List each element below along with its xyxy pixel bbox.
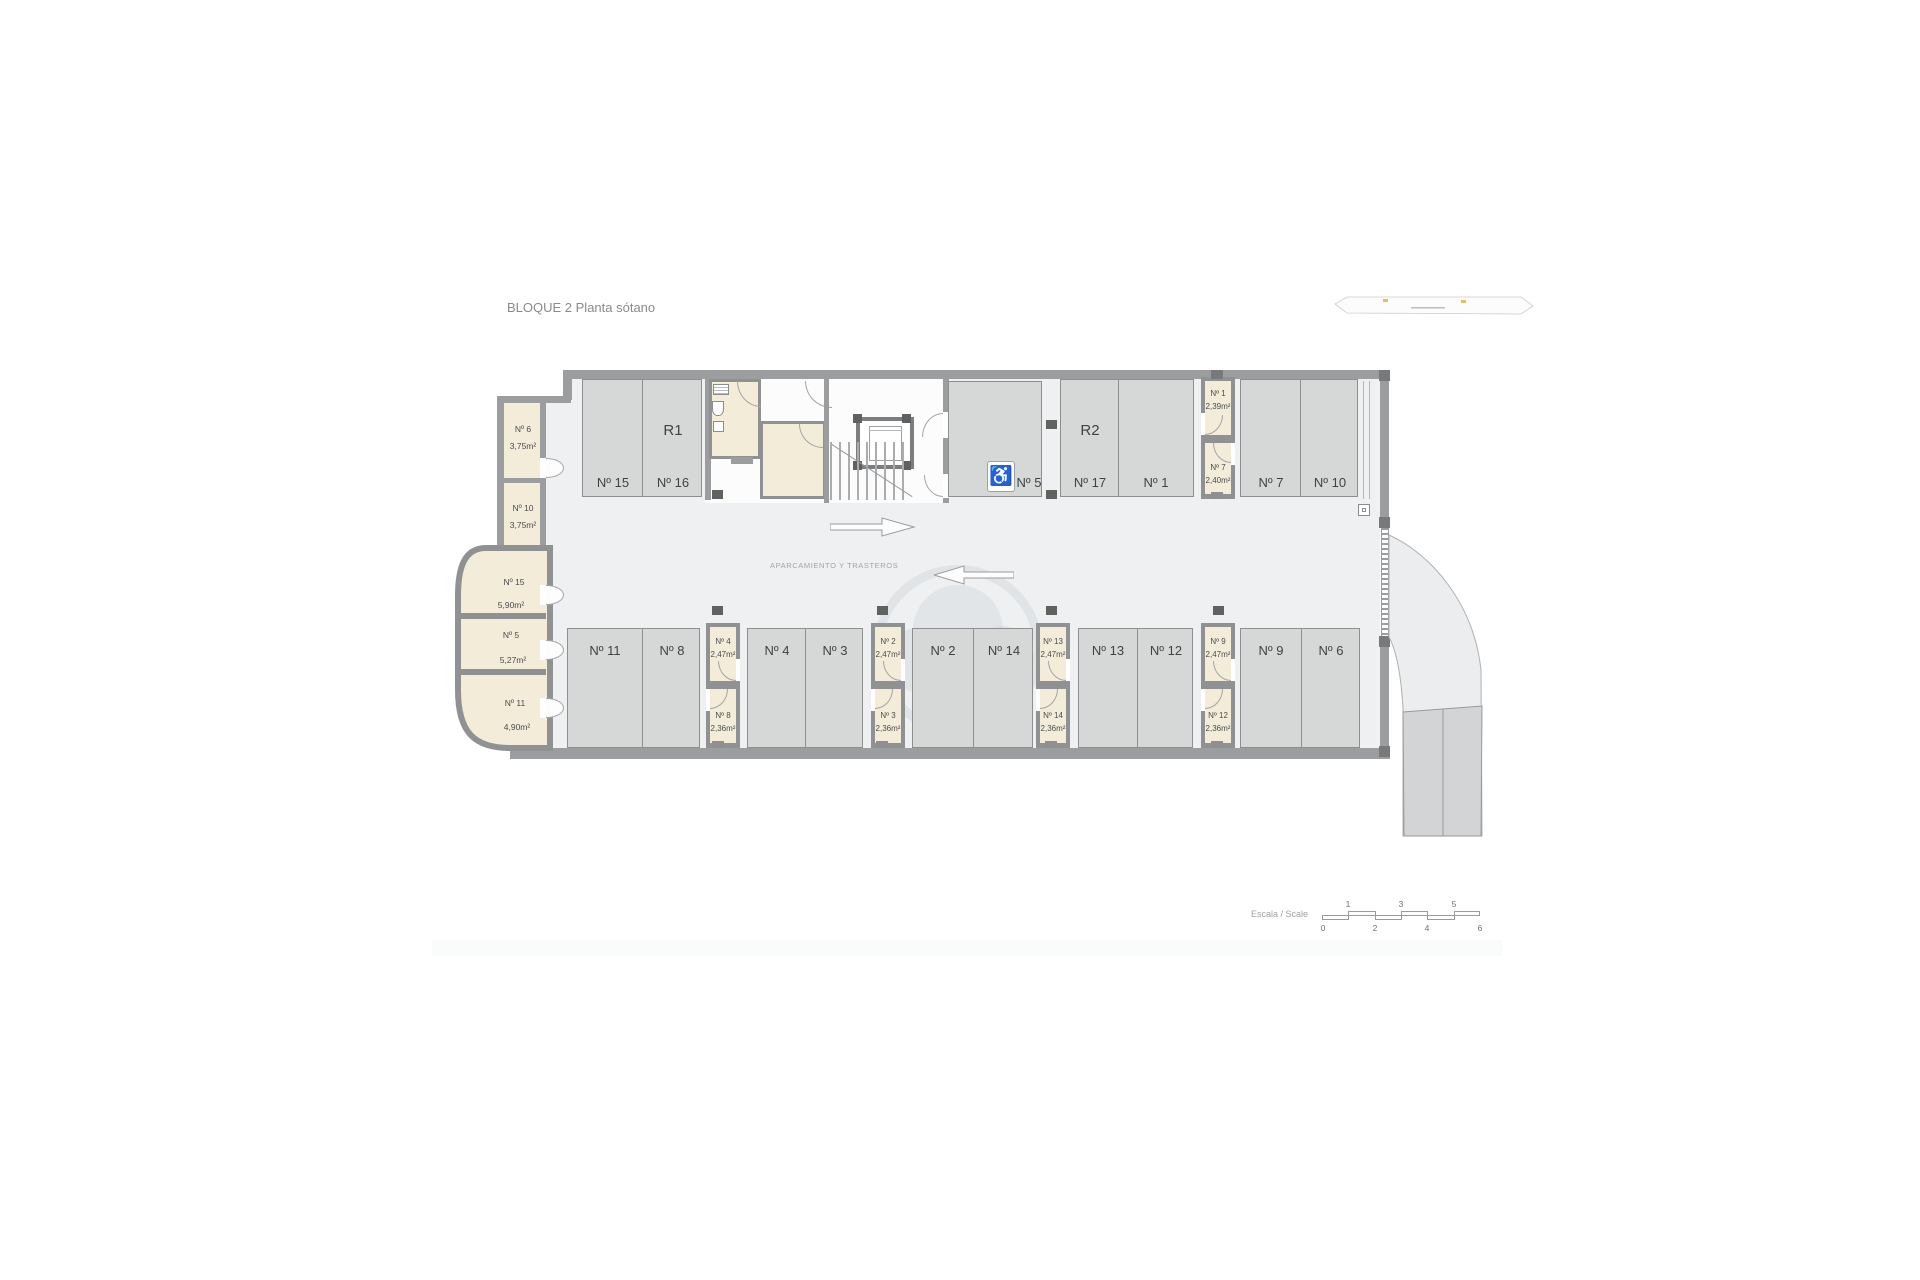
stall-n16-label: Nº 16 <box>657 475 689 490</box>
pillar <box>1213 606 1224 615</box>
scale-label: Escala / Scale <box>1251 909 1308 919</box>
storage-n5-no: Nº 5 <box>503 630 519 640</box>
floor-mask-topleft <box>506 370 563 397</box>
sink-icon <box>713 384 729 395</box>
scale-segment <box>1454 911 1480 916</box>
stall-n7-label: Nº 7 <box>1259 475 1284 490</box>
wall-joint-top-right <box>1379 370 1390 381</box>
scale-segment <box>1322 915 1349 920</box>
gate-control-dot <box>1362 508 1366 512</box>
scale-tick-0: 0 <box>1321 923 1326 933</box>
pillar <box>1046 420 1057 429</box>
door-track-line-1 <box>1363 381 1364 499</box>
ramp <box>1388 520 1498 840</box>
cabinet-icon <box>713 421 724 432</box>
stall-n10-label: Nº 10 <box>1314 475 1346 490</box>
accessible-badge: ♿ <box>987 461 1015 492</box>
scale-bar: 1 3 5 0 2 4 6 <box>1322 899 1482 935</box>
stall-divider <box>642 629 644 747</box>
stall-n1-label: Nº 1 <box>1144 475 1169 490</box>
wall-bottom <box>510 748 1390 759</box>
stall-divider <box>642 380 644 496</box>
storage-n7-no: Nº 7 <box>1201 463 1235 472</box>
storage-n11-no: Nº 11 <box>505 698 525 708</box>
page-title: BLOQUE 2 Planta sótano <box>507 300 655 315</box>
storage-col1-bottom-area: 2,36m² <box>706 724 740 733</box>
storage-column-3: Nº 13 2,47m² Nº 14 2,36m² <box>1036 623 1070 748</box>
door-gap-col1-top <box>736 659 740 681</box>
storage-col1-top-area: 2,47m² <box>706 650 740 659</box>
storage-col4-top-no: Nº 9 <box>1201 637 1235 646</box>
storage-room-n10 <box>504 483 540 548</box>
stall-pair-7-10: Nº 7 Nº 10 <box>1240 379 1358 497</box>
pillar <box>712 606 723 615</box>
stall-pair-2-14: Nº 2 Nº 14 <box>912 628 1033 748</box>
pillar <box>712 490 723 499</box>
storage-col4-bottom-no: Nº 12 <box>1201 711 1235 720</box>
stair-left-wall <box>824 379 829 503</box>
stall-divider <box>805 629 807 747</box>
wall-right-upper <box>1380 370 1389 528</box>
storage-column-4: Nº 9 2,47m² Nº 12 2,36m² <box>1201 623 1235 748</box>
storage-col2-bottom-no: Nº 3 <box>871 711 905 720</box>
stall-pair-15-16: R1 Nº 15 Nº 16 <box>582 379 702 497</box>
stall-n9-label: Nº 9 <box>1259 643 1284 658</box>
storage-n10-no: Nº 10 <box>512 503 533 513</box>
scale-segment <box>1348 911 1376 916</box>
utility-notch <box>731 457 753 464</box>
storage-column-2: Nº 2 2,47m² Nº 3 2,36m² <box>871 623 905 748</box>
stall-n4-label: Nº 4 <box>765 643 790 658</box>
scale-segment <box>1427 915 1455 920</box>
stall-pair-11-8: Nº 11 Nº 8 <box>567 628 700 748</box>
elevator-post-tr <box>902 414 911 423</box>
storage-col4-bottom-area: 2,36m² <box>1201 724 1235 733</box>
storage-n1-no: Nº 1 <box>1201 389 1235 398</box>
stall-pair-13-12: Nº 13 Nº 12 <box>1078 628 1193 748</box>
scale-tick-3: 3 <box>1399 899 1404 909</box>
storage-col2-bottom-area: 2,36m² <box>871 724 905 733</box>
storage-n5-area: 5,27m² <box>500 655 526 665</box>
wall-stub <box>876 741 888 748</box>
site-caption-line <box>1411 307 1445 309</box>
storage-column-1: Nº 4 2,47m² Nº 8 2,36m² <box>706 623 740 748</box>
storage-col3-bottom-area: 2,36m² <box>1036 724 1070 733</box>
floorplan-page: BLOQUE 2 Planta sótano <box>0 0 1920 1280</box>
scale-tick-4: 4 <box>1425 923 1430 933</box>
scale-segment <box>1375 915 1402 920</box>
storage-n15-area: 5,90m² <box>498 600 524 610</box>
wheelchair-icon: ♿ <box>989 466 1013 487</box>
storage-n1-area: 2,39m² <box>1201 402 1235 411</box>
pillar <box>1046 490 1057 499</box>
storage-col2-top-no: Nº 2 <box>871 637 905 646</box>
stall-n17-label: Nº 17 <box>1074 475 1106 490</box>
scale-segment <box>1401 911 1428 916</box>
stall-divider <box>1300 380 1302 496</box>
door-track-line-2 <box>1369 381 1370 499</box>
storage-col4-top-area: 2,47m² <box>1201 650 1235 659</box>
storage-col3-top-no: Nº 13 <box>1036 637 1070 646</box>
door-gap-col3-top <box>1066 659 1070 681</box>
room-r2-label: R2 <box>1080 422 1099 439</box>
wall-stub <box>1045 741 1057 748</box>
wall-stub <box>1211 741 1223 748</box>
wall-stub <box>1211 492 1223 499</box>
storage-n10-area: 3,75m² <box>510 520 536 530</box>
stall-n12-label: Nº 12 <box>1150 643 1182 658</box>
wall-top <box>563 370 1390 379</box>
pillar <box>877 606 888 615</box>
storage-col3-top-area: 2,47m² <box>1036 650 1070 659</box>
wall-left-vertical <box>497 396 504 551</box>
storage-n11-area: 4,90m² <box>504 722 530 732</box>
stall-divider <box>1137 629 1139 747</box>
door-gap-col4-top <box>1231 659 1235 681</box>
door-gap-storage-n7 <box>1231 443 1235 465</box>
door-gap-col2-top <box>901 659 905 681</box>
direction-arrow-right <box>830 516 916 538</box>
storage-n6-area: 3,75m² <box>510 441 536 451</box>
room-r1-label: R1 <box>663 422 682 439</box>
storage-n6-no: Nº 6 <box>515 424 531 434</box>
elevator-post-tl <box>853 414 862 423</box>
stall-pair-4-3: Nº 4 Nº 3 <box>747 628 863 748</box>
storage-col3-bottom-no: Nº 14 <box>1036 711 1070 720</box>
stall-n13-label: Nº 13 <box>1092 643 1124 658</box>
stall-divider <box>973 629 975 747</box>
stall-n5-accessible: ♿ Nº 5 <box>948 381 1042 497</box>
toilet-icon <box>712 401 724 416</box>
stall-n11-label: Nº 11 <box>589 643 620 658</box>
site-marker-2 <box>1461 300 1466 303</box>
faint-band <box>432 940 1502 956</box>
wall-left-horizontal <box>497 396 571 403</box>
stall-n8-label: Nº 8 <box>660 643 685 658</box>
wall-stub <box>712 741 724 748</box>
elevator-cab-line <box>869 430 902 431</box>
stall-pair-9-6: Nº 9 Nº 6 <box>1240 628 1360 748</box>
site-marker-1 <box>1383 299 1388 302</box>
storage-col1-top-no: Nº 4 <box>706 637 740 646</box>
stall-pair-17-1: R2 Nº 17 Nº 1 <box>1060 379 1194 497</box>
aisle-label: APARCAMIENTO Y TRASTEROS <box>770 561 898 570</box>
scale-tick-5: 5 <box>1452 899 1457 909</box>
direction-arrow-left <box>934 564 1014 586</box>
stall-n15-label: Nº 15 <box>597 475 629 490</box>
scale-tick-1: 1 <box>1346 899 1351 909</box>
stall-n6-label: Nº 6 <box>1319 643 1344 658</box>
storage-n7-area: 2,40m² <box>1201 476 1235 485</box>
wall-stub <box>1211 370 1223 379</box>
storage-bump <box>450 540 554 766</box>
stall-n3-label: Nº 3 <box>823 643 848 658</box>
scale-tick-2: 2 <box>1373 923 1378 933</box>
site-thumbnail <box>1333 293 1535 321</box>
storage-col1-bottom-no: Nº 8 <box>706 711 740 720</box>
stall-n2-label: Nº 2 <box>931 643 956 658</box>
storage-column-top: Nº 1 2,39m² Nº 7 2,40m² <box>1201 377 1235 499</box>
pillar <box>1046 606 1057 615</box>
stall-n14-label: Nº 14 <box>988 643 1020 658</box>
storage-n15-no: Nº 15 <box>503 577 524 587</box>
stall-divider <box>1301 629 1303 747</box>
scale-tick-6: 6 <box>1478 923 1483 933</box>
stall-divider <box>1118 380 1120 496</box>
storage-col2-top-area: 2,47m² <box>871 650 905 659</box>
stall-n5-label: Nº 5 <box>1017 475 1042 490</box>
